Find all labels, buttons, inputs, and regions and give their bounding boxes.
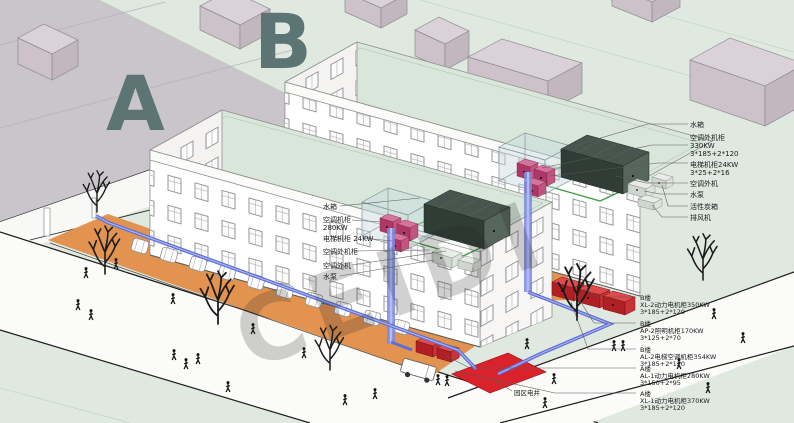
gate-post (44, 208, 50, 236)
label-activated-carbon-box-b: 活性炭箱 (690, 202, 718, 211)
label-water-tank-a: 水箱 (323, 202, 337, 211)
label-ac-outdoor-cabinet-b-spec: 3*185+2*120 (690, 150, 739, 158)
label-ac-outdoor-unit-b: 空调外机 (690, 179, 718, 188)
label-ac-outdoor-cabinet-b-kw: 330KW (690, 142, 715, 150)
label-elevator-cabinet-b: 电梯机柜24KW (690, 160, 738, 169)
label-ac-outdoor-unit-a: 空调外机 (323, 261, 351, 270)
label-water-pump-a: 水泵 (323, 272, 337, 281)
label-elevator-cabinet-b-spec: 3*25+2*16 (690, 169, 730, 177)
label-elevator-cabinet-a: 电梯机柜 24KW (323, 234, 373, 243)
label-ac-cabinet-a-kw: 280KW (323, 224, 348, 232)
label-exhaust-fan-b: 排风机 (690, 213, 711, 222)
cabinet-label-spec: 3*125+2*70 (640, 334, 681, 342)
label-ac-outdoor-cabinet-b: 空调外机柜 (690, 133, 725, 142)
building-a-letter: A (106, 59, 165, 148)
label-campus-electric-shaft: 园区电井 (514, 388, 541, 397)
label-water-pump-b: 水泵 (690, 190, 704, 199)
label-ac-outdoor-cabinet-a: 空调外机柜 (323, 247, 358, 256)
cabinet-label-spec: 3*185+2*120 (640, 404, 685, 412)
axonometric-site-diagram: A B (0, 0, 794, 423)
cabinet-label-spec: 3*185+2*120 (640, 308, 685, 316)
cabinet-label-spec: 3*150+2*95 (640, 379, 681, 387)
label-ac-cabinet-a: 空调机柜 (323, 215, 351, 224)
label-water-tank-b: 水箱 (690, 120, 704, 129)
